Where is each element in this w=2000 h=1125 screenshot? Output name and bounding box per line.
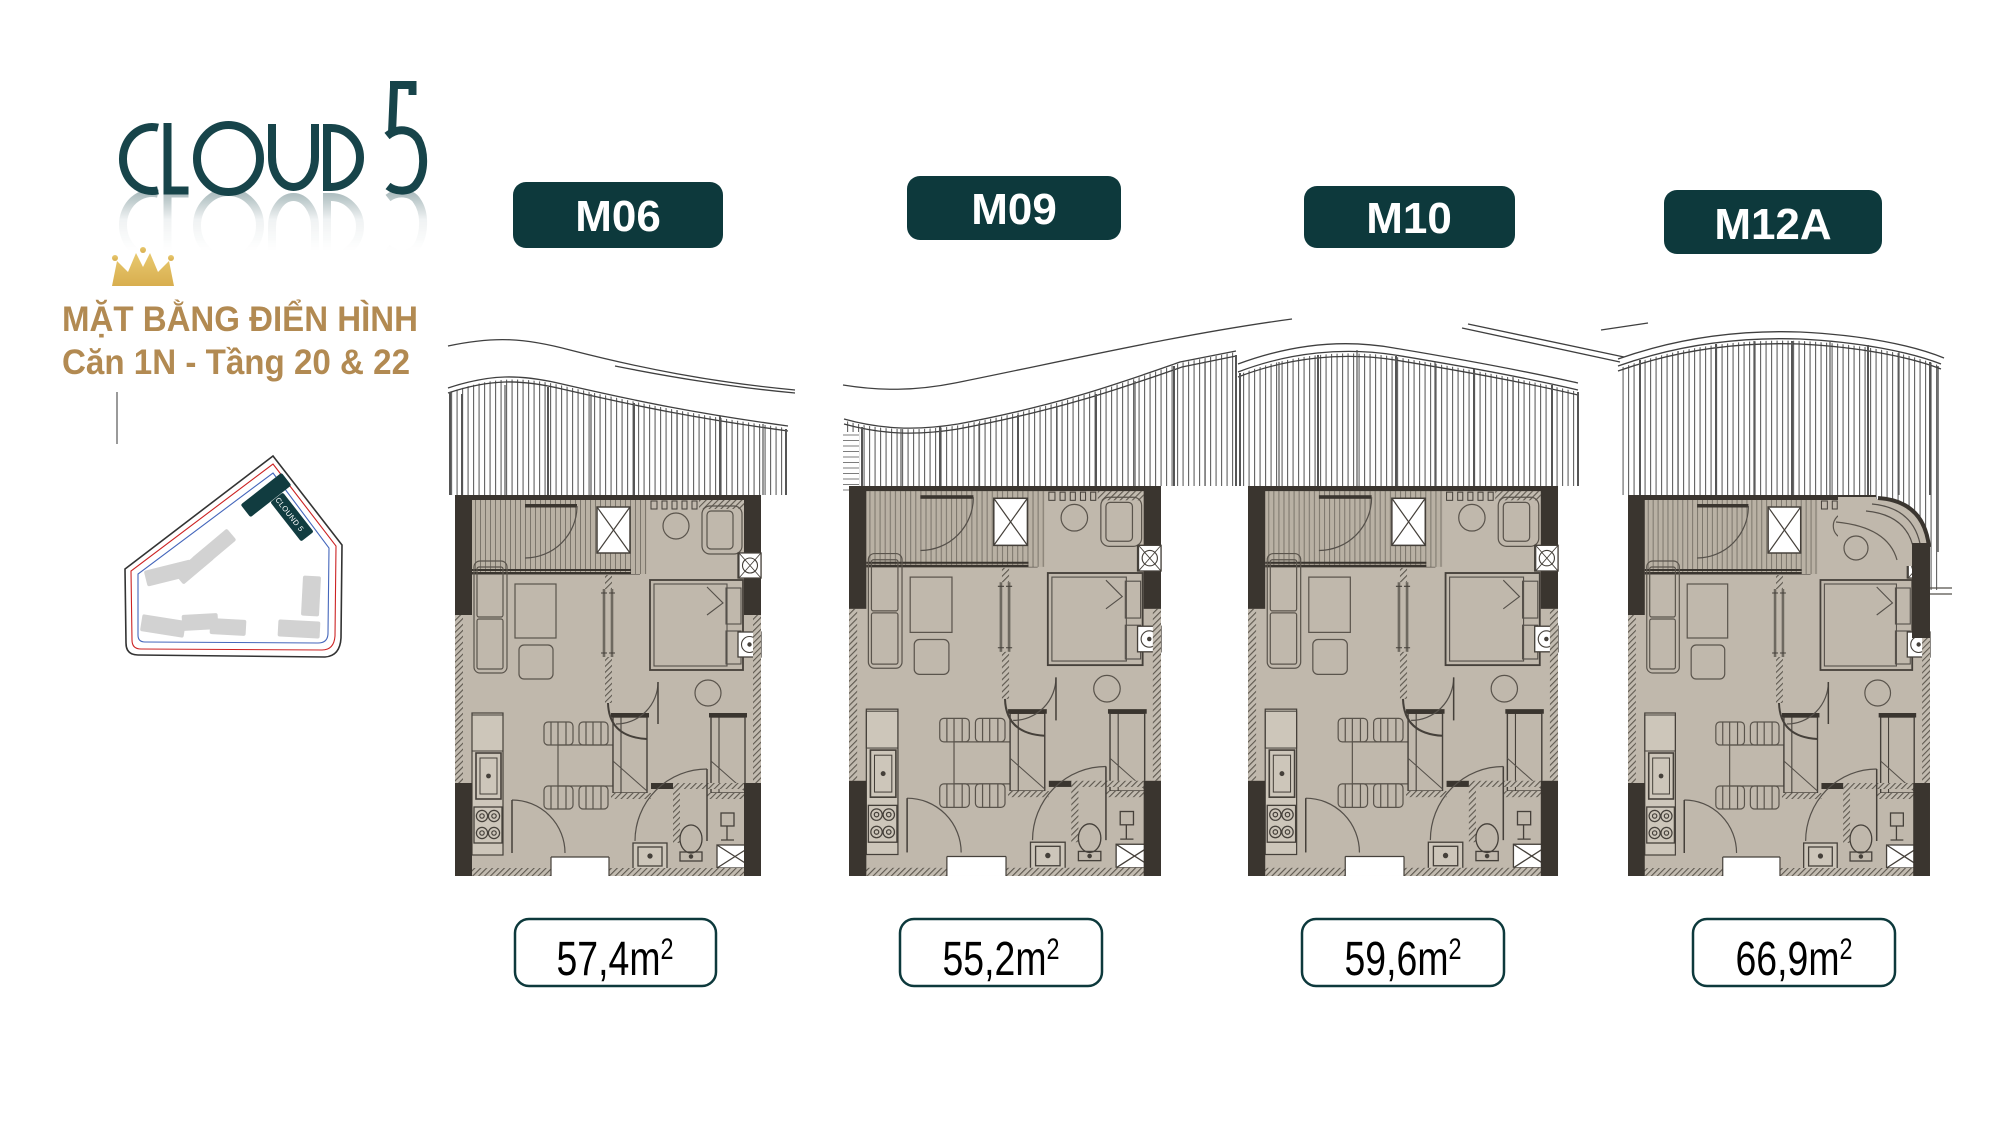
svg-text:M10: M10	[1366, 194, 1452, 243]
svg-text:MẶT BẰNG ĐIỂN HÌNH: MẶT BẰNG ĐIỂN HÌNH	[62, 299, 418, 339]
svg-text:Căn 1N - Tầng 20 & 22: Căn 1N - Tầng 20 & 22	[62, 343, 410, 382]
svg-text:M06: M06	[575, 192, 661, 241]
svg-text:M12A: M12A	[1714, 200, 1831, 249]
svg-text:66,9m2: 66,9m2	[1736, 933, 1853, 986]
svg-text:59,6m2: 59,6m2	[1345, 933, 1462, 986]
svg-text:55,2m2: 55,2m2	[943, 933, 1060, 986]
svg-text:M09: M09	[971, 185, 1057, 234]
svg-text:57,4m2: 57,4m2	[557, 933, 674, 986]
